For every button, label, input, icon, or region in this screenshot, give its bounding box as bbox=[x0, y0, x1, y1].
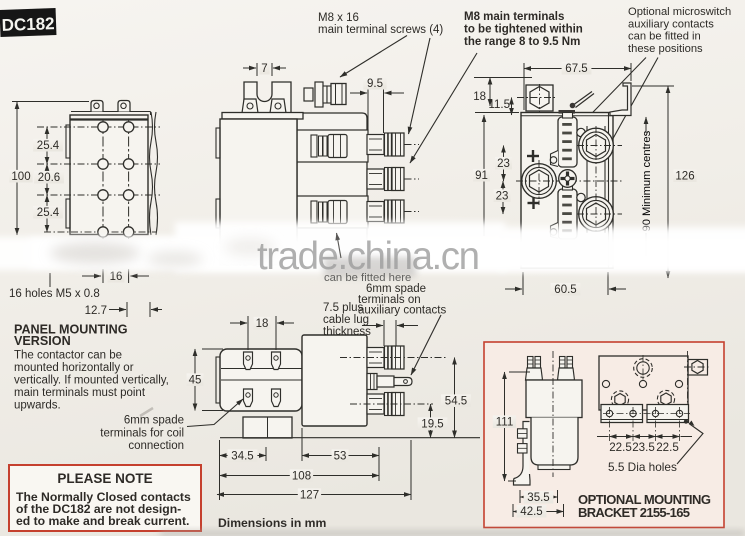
svg-text:7: 7 bbox=[261, 63, 267, 75]
svg-text:thickness: thickness bbox=[323, 326, 371, 338]
svg-text:5.5 Dia holes: 5.5 Dia holes bbox=[608, 460, 677, 474]
svg-text:can be fitted in: can be fitted in bbox=[628, 31, 701, 43]
svg-text:6mm spade: 6mm spade bbox=[124, 415, 184, 427]
svg-text:12.7: 12.7 bbox=[85, 305, 107, 317]
svg-text:34.5: 34.5 bbox=[231, 451, 253, 463]
svg-text:9.5: 9.5 bbox=[367, 78, 383, 90]
svg-text:90 Minimum centres: 90 Minimum centres bbox=[641, 130, 653, 231]
svg-text:16: 16 bbox=[110, 271, 123, 283]
svg-text:auxiliary contacts: auxiliary contacts bbox=[628, 18, 714, 30]
svg-text:67.5: 67.5 bbox=[565, 63, 587, 75]
svg-text:23: 23 bbox=[497, 158, 510, 170]
svg-text:16 holes M5 x 0.8: 16 holes M5 x 0.8 bbox=[9, 288, 100, 300]
svg-text:25.4: 25.4 bbox=[37, 207, 60, 219]
svg-text:127: 127 bbox=[300, 490, 319, 502]
svg-text:ed to make and break current.: ed to make and break current. bbox=[16, 514, 189, 528]
svg-text:111: 111 bbox=[496, 417, 513, 429]
svg-text:23.5: 23.5 bbox=[632, 441, 655, 454]
svg-text:M8 x 16: M8 x 16 bbox=[318, 12, 359, 24]
svg-text:22.5: 22.5 bbox=[656, 441, 679, 454]
svg-text:main terminal screws (4): main terminal screws (4) bbox=[318, 24, 443, 36]
svg-text:connection: connection bbox=[128, 440, 184, 452]
svg-text:23: 23 bbox=[496, 191, 509, 203]
svg-text:18: 18 bbox=[256, 318, 269, 330]
svg-text:DC182: DC182 bbox=[1, 14, 55, 35]
svg-text:terminals for coil: terminals for coil bbox=[100, 428, 184, 440]
svg-text:PLEASE NOTE: PLEASE NOTE bbox=[57, 471, 152, 486]
svg-text:M8 main terminals: M8 main terminals bbox=[464, 11, 564, 23]
svg-text:mounted horizontally or: mounted horizontally or bbox=[14, 362, 134, 374]
svg-text:19.5: 19.5 bbox=[421, 419, 443, 431]
svg-text:100: 100 bbox=[11, 171, 30, 183]
svg-text:22.5: 22.5 bbox=[609, 441, 632, 454]
svg-text:BRACKET 2155-165: BRACKET 2155-165 bbox=[578, 505, 690, 520]
svg-text:91: 91 bbox=[475, 170, 488, 182]
svg-text:25.4: 25.4 bbox=[37, 140, 60, 152]
svg-text:to be tightened within: to be tightened within bbox=[464, 24, 583, 36]
svg-text:126: 126 bbox=[675, 171, 694, 183]
svg-text:53: 53 bbox=[334, 451, 347, 463]
svg-text:18: 18 bbox=[473, 91, 486, 103]
svg-text:11.5: 11.5 bbox=[488, 99, 510, 111]
svg-text:20.6: 20.6 bbox=[38, 172, 60, 184]
svg-text:vertically. If mounted vertica: vertically. If mounted vertically, bbox=[14, 375, 169, 387]
svg-text:The contactor can be: The contactor can be bbox=[14, 350, 122, 362]
svg-text:upwards.: upwards. bbox=[14, 400, 61, 412]
svg-text:35.5: 35.5 bbox=[527, 492, 549, 504]
svg-text:108: 108 bbox=[292, 471, 311, 483]
svg-text:VERSION: VERSION bbox=[14, 334, 71, 348]
svg-text:main terminals must point: main terminals must point bbox=[14, 387, 146, 399]
svg-text:the range 8 to 9.5 Nm: the range 8 to 9.5 Nm bbox=[464, 36, 580, 48]
svg-text:auxiliary contacts: auxiliary contacts bbox=[358, 305, 446, 317]
svg-text:54.5: 54.5 bbox=[445, 396, 467, 408]
svg-text:Optional microswitch: Optional microswitch bbox=[628, 6, 731, 18]
svg-text:Dimensions in mm: Dimensions in mm bbox=[218, 516, 327, 530]
svg-text:42.5: 42.5 bbox=[520, 506, 542, 518]
svg-text:45: 45 bbox=[189, 375, 202, 387]
svg-text:these positions: these positions bbox=[628, 43, 703, 55]
svg-text:60.5: 60.5 bbox=[554, 284, 576, 296]
